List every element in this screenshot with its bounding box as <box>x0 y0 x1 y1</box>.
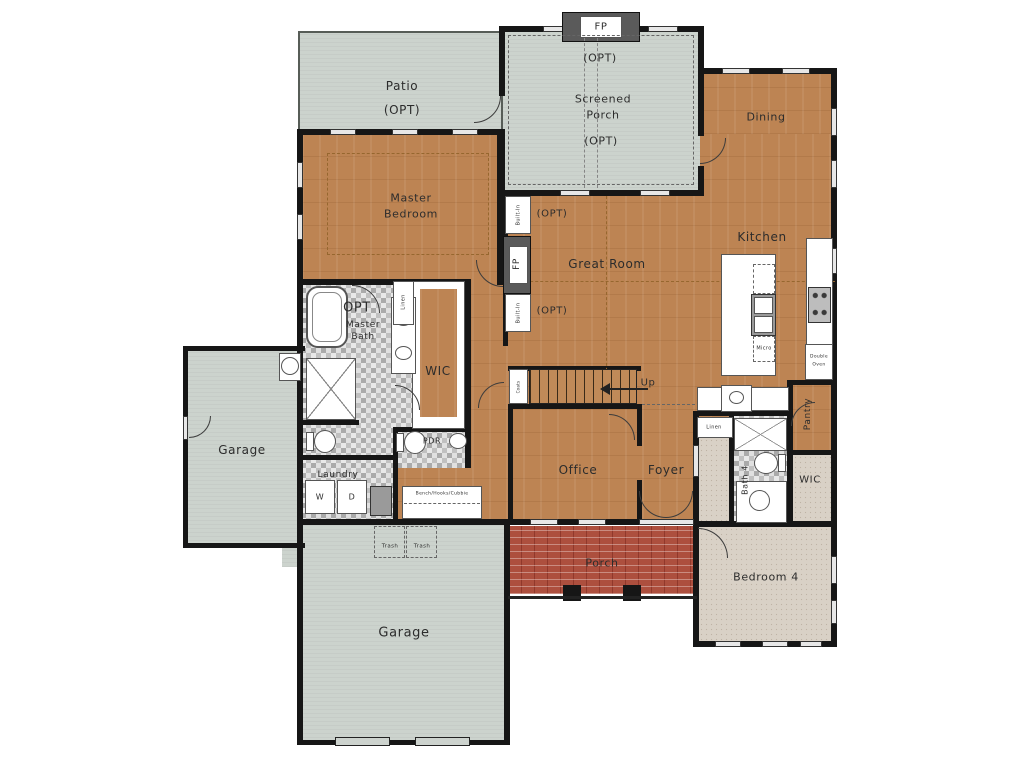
window <box>831 556 837 584</box>
window <box>782 68 810 74</box>
toilet-bowl <box>314 430 336 453</box>
ceiling-line-h <box>505 281 835 282</box>
screened-porch-opt: (OPT) <box>584 135 618 148</box>
master-bath-opt: OPT <box>343 301 371 316</box>
fireplace-label: FP <box>512 258 522 270</box>
island-sink-basin-1 <box>754 297 773 314</box>
wall-segment <box>183 346 188 548</box>
patio-opt: (OPT) <box>384 103 420 117</box>
trash-label-1: Trash <box>382 543 399 549</box>
wall-segment <box>297 420 359 425</box>
window <box>639 519 694 525</box>
window <box>330 129 356 135</box>
toilet-tank <box>778 454 786 472</box>
pdr-sink <box>449 433 467 449</box>
bath4-sink <box>749 490 770 511</box>
double-oven-label-1: Double <box>810 353 828 358</box>
window <box>800 641 822 647</box>
window <box>762 641 788 647</box>
bedroom4-label: Bedroom 4 <box>733 571 799 584</box>
stairs <box>529 369 637 404</box>
office-label: Office <box>559 463 598 477</box>
dining-floor <box>700 72 833 134</box>
window <box>831 160 837 188</box>
hall-sink-basin <box>729 391 744 404</box>
island-sink-basin-2 <box>754 316 773 333</box>
wall-segment <box>504 519 510 745</box>
window <box>392 129 418 135</box>
built-in-upper-label: Built-In <box>515 205 521 226</box>
double-oven-label-2: Oven <box>812 361 825 366</box>
built-in-upper-opt: (OPT) <box>537 209 568 220</box>
kitchen-label: Kitchen <box>737 230 786 244</box>
hall-linen-label: Linen <box>706 424 721 430</box>
window <box>578 519 606 525</box>
wall-segment <box>788 450 837 455</box>
window <box>693 445 699 477</box>
window <box>640 190 670 196</box>
wall-segment <box>465 279 471 432</box>
wall-segment <box>698 166 704 192</box>
wall-segment <box>297 519 697 525</box>
wic-floor <box>420 289 457 417</box>
wall-segment <box>297 519 303 745</box>
pdr-label: PDR <box>423 437 441 446</box>
bench-label: Bench/Hooks/Cubbie <box>416 490 469 495</box>
window <box>831 108 837 136</box>
trash-label-2: Trash <box>414 543 431 549</box>
bath4-label: Bath 4 <box>741 465 750 495</box>
bath4-toilet <box>752 452 786 474</box>
dining-label: Dining <box>746 111 785 124</box>
master-bath-label-2: Bath <box>351 332 374 342</box>
foyer-label: Foyer <box>648 463 684 477</box>
wall-segment <box>297 740 510 745</box>
up-arrow-head <box>600 383 610 395</box>
bath4-shower <box>734 418 787 451</box>
built-in-lower-label: Built-In <box>515 303 521 324</box>
screened-porch-label-2: Porch <box>586 109 619 122</box>
window <box>648 26 678 32</box>
wic-label: WIC <box>425 364 451 378</box>
master-sink-2 <box>395 346 412 360</box>
wall-segment <box>698 68 704 136</box>
fp-chimney-label: FP <box>595 22 608 33</box>
garage-bottom-label: Garage <box>378 626 429 641</box>
wall-segment <box>788 380 837 385</box>
tub-inner <box>312 292 342 342</box>
built-in-lower-opt: (OPT) <box>537 306 568 317</box>
garage-door-2 <box>415 737 470 746</box>
wall-segment <box>499 26 505 96</box>
wall-segment <box>183 543 305 548</box>
window <box>297 214 303 240</box>
laundry-label: Laundry <box>318 470 359 480</box>
toilet-bowl <box>754 452 778 474</box>
stair-rail-dash <box>642 404 695 405</box>
wic4-label: WIC <box>799 475 821 486</box>
micro-label: Micro <box>756 345 771 351</box>
hall-carpet-floor <box>699 438 729 523</box>
screened-porch-label-1: Screened <box>575 93 631 106</box>
cooktop <box>808 287 831 323</box>
master-tub <box>306 286 348 348</box>
wall-segment <box>297 455 397 460</box>
water-heater <box>281 357 299 375</box>
master-shower <box>306 358 356 420</box>
porch-edge <box>508 596 697 599</box>
garage-door-1 <box>335 737 390 746</box>
coats-label: Coats <box>516 381 521 394</box>
patio-label: Patio <box>386 79 418 93</box>
window <box>831 600 837 624</box>
wall-segment <box>465 427 471 468</box>
garage-left-label: Garage <box>218 443 266 457</box>
mud-bench-line <box>404 503 480 504</box>
porch-label: Porch <box>585 557 618 570</box>
wic4-floor <box>793 455 831 521</box>
laundry-cabinet <box>370 486 392 516</box>
wall-segment <box>698 26 704 74</box>
great-room-label: Great Room <box>568 257 645 271</box>
window <box>530 519 558 525</box>
window <box>452 129 478 135</box>
window <box>715 641 741 647</box>
window <box>297 162 303 188</box>
island-dash-upper <box>753 264 775 294</box>
wall-segment <box>637 404 642 446</box>
master-toilet <box>306 430 338 453</box>
dryer-label: D <box>349 493 356 502</box>
wall-segment <box>297 129 303 525</box>
floor-plan-canvas: FP(OPT)Patio(OPT)ScreenedPorch(OPT)Dinin… <box>0 0 1024 768</box>
fp-chimney-opt: (OPT) <box>583 52 617 65</box>
up-label: Up <box>641 378 656 389</box>
master-bedroom-label-1: Master <box>390 192 431 205</box>
window <box>183 416 188 440</box>
toilet-tank <box>396 433 404 452</box>
window <box>560 190 590 196</box>
window <box>722 68 750 74</box>
wall-segment <box>698 68 837 74</box>
pantry-label: Pantry <box>803 398 813 430</box>
washer-label: W <box>316 493 325 502</box>
master-bath-label-1: Master <box>346 320 380 330</box>
ceiling-line-v <box>606 196 607 381</box>
toilet-tank <box>306 432 314 451</box>
wall-segment <box>508 404 513 525</box>
master-bedroom-label-2: Bedroom <box>384 208 438 221</box>
wall-segment <box>183 346 305 351</box>
wall-segment <box>508 404 641 409</box>
master-linen-label: Linen <box>400 294 406 309</box>
